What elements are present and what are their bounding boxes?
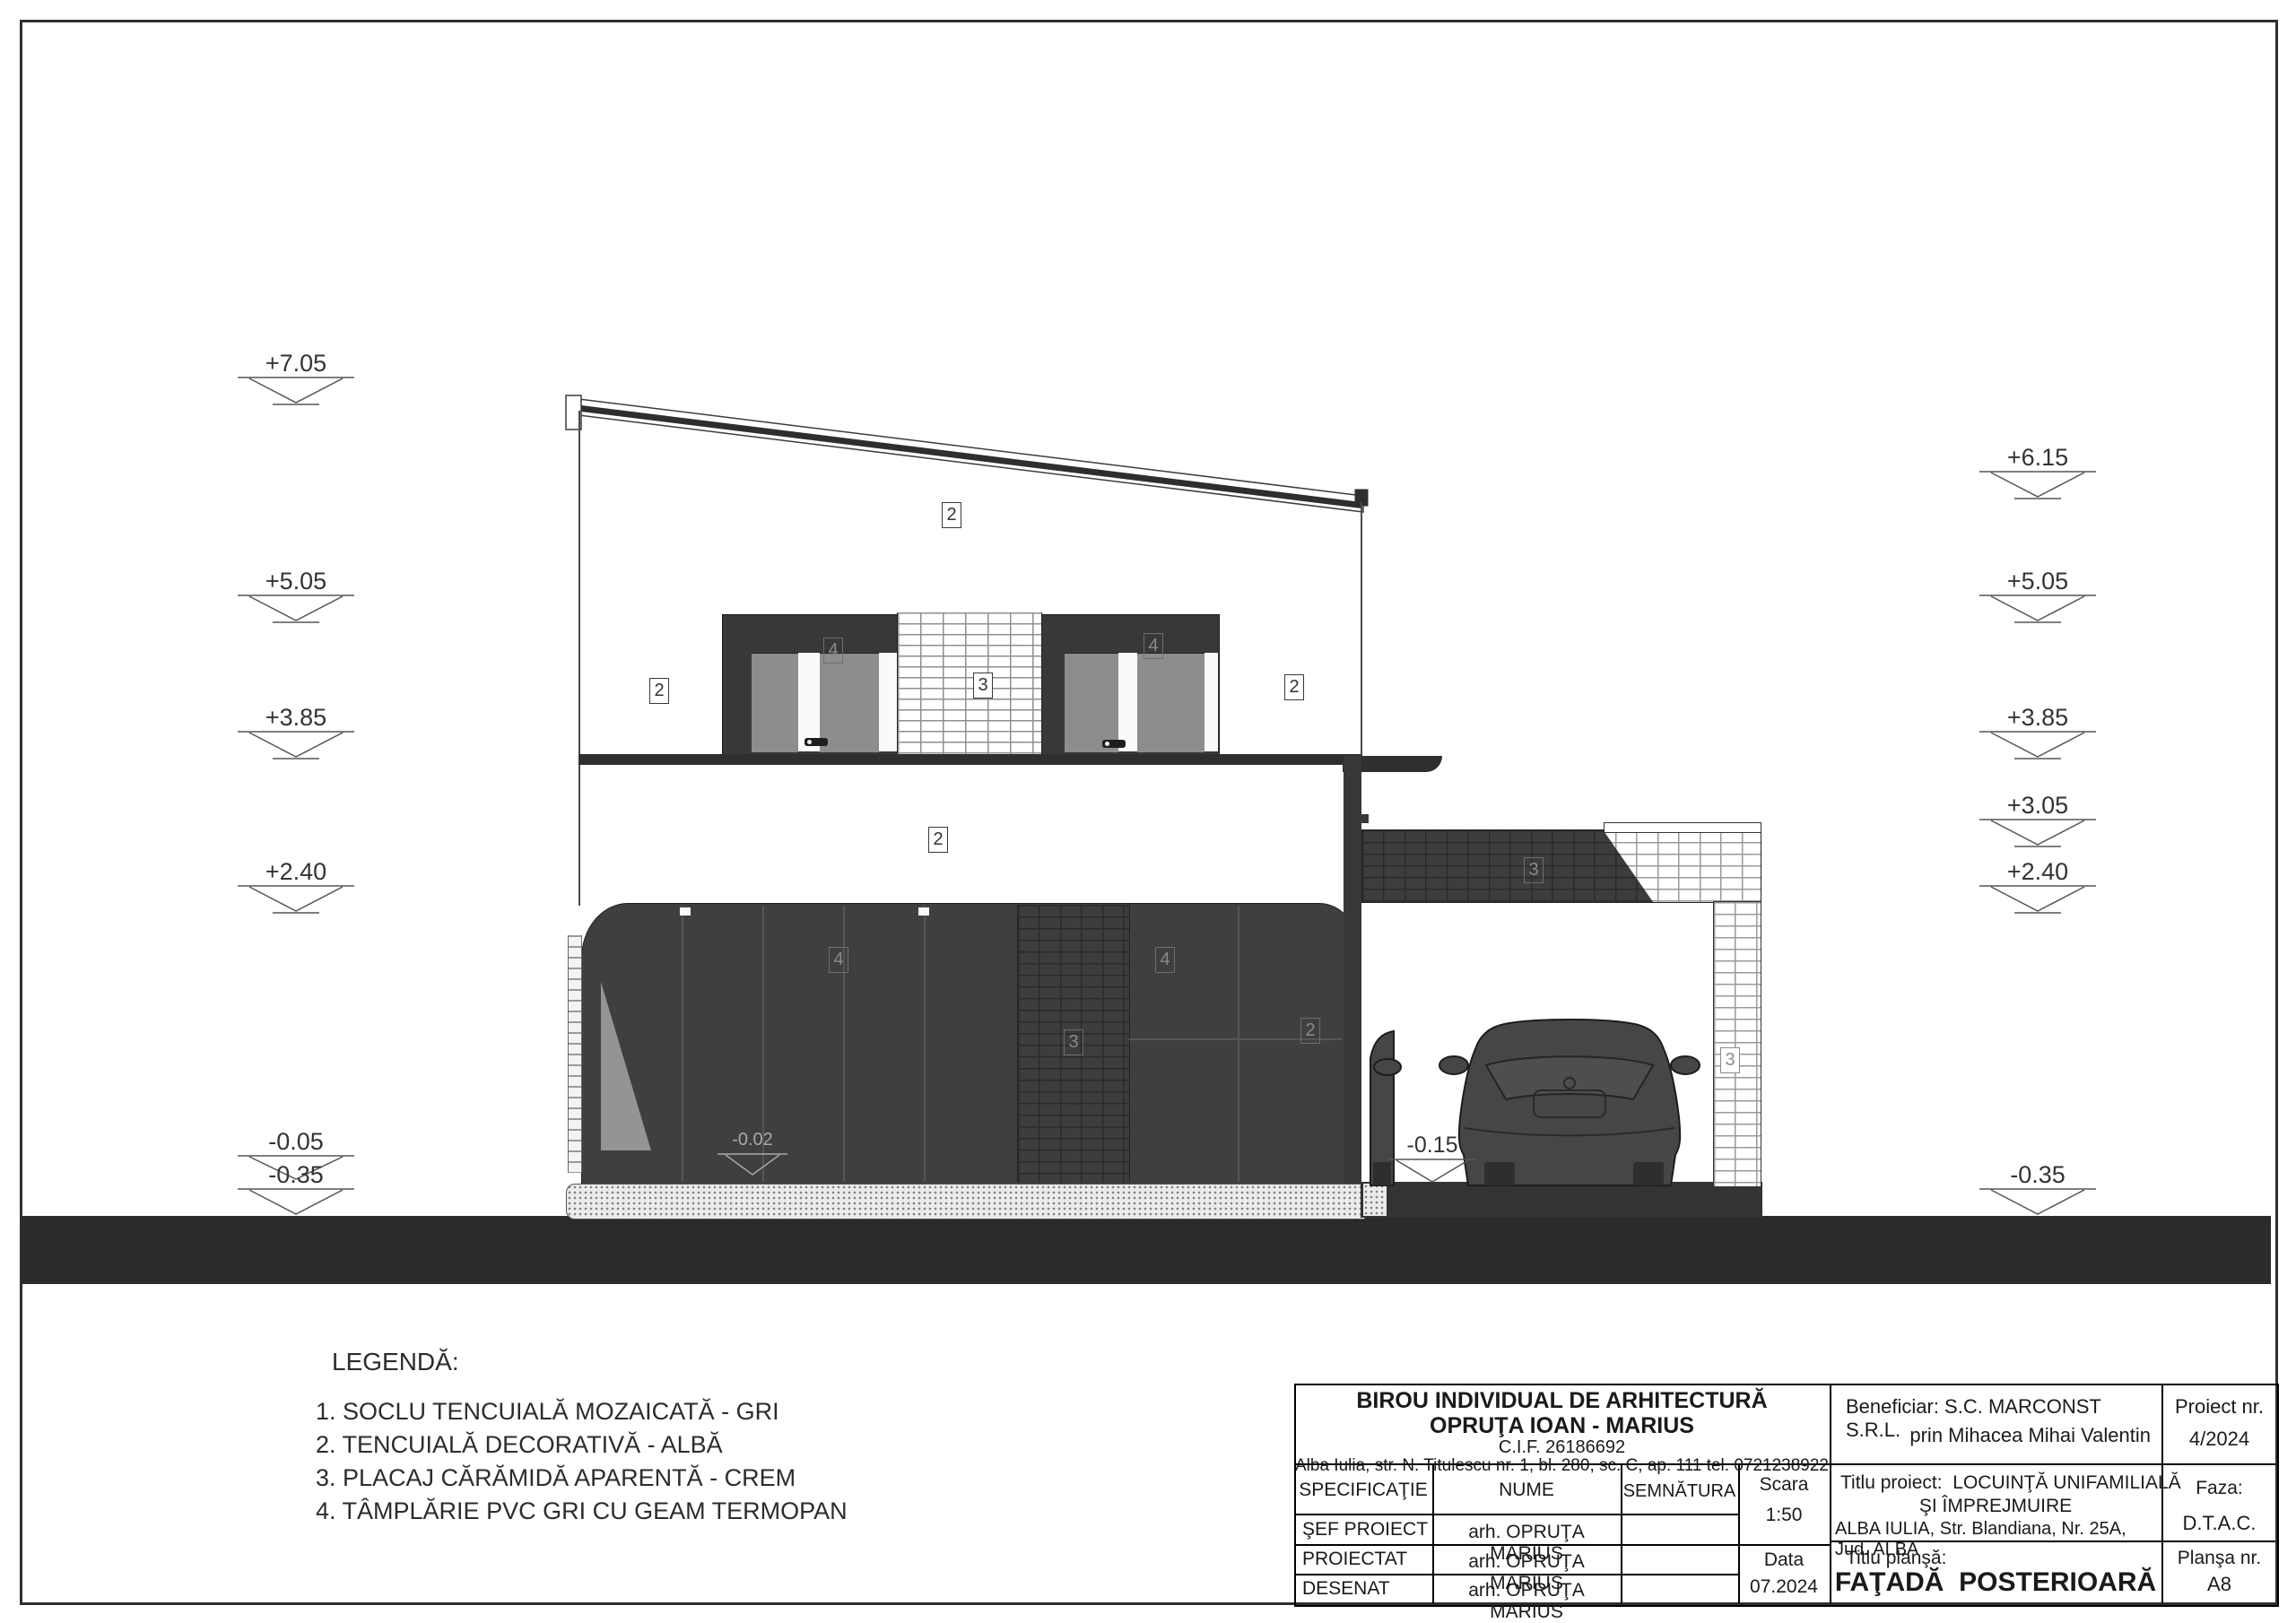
callout-ground-right: 4 — [1155, 947, 1175, 973]
proiect-nr-value: 4/2024 — [2163, 1428, 2275, 1451]
col-specificatie: SPECIFICAŢIE — [1294, 1480, 1432, 1501]
scara-label: Scara — [1738, 1474, 1830, 1496]
drawing-sheet: 2 2 2 4 3 4 2 4 3 4 2 3 3 +7.05 +5.05 +3… — [0, 0, 2296, 1623]
office-address: Alba Iulia, str. N. Titulescu nr. 1, bl.… — [1294, 1456, 1830, 1476]
callout-ground-left: 4 — [829, 947, 848, 973]
data-value: 07.2024 — [1738, 1576, 1830, 1598]
col-nume: NUME — [1432, 1480, 1621, 1501]
legend-title: LEGENDĂ: — [332, 1348, 459, 1376]
callout-window-upper-left: 4 — [823, 638, 843, 664]
elevation-label: +3.85 — [237, 704, 355, 731]
callout-wall-right: 2 — [1284, 674, 1304, 700]
row-spec: DESENAT — [1302, 1578, 1390, 1600]
elevation-marker: +3.05 — [1979, 792, 2097, 851]
callout-ground-wall: 2 — [1300, 1018, 1320, 1044]
office-name: BIROU INDIVIDUAL DE ARHITECTURĂ — [1294, 1388, 1830, 1414]
proiect-nr-label: Proiect nr. — [2163, 1395, 2275, 1419]
elevation-marker: +2.40 — [1979, 858, 2097, 917]
car-mirror — [1439, 1056, 1468, 1074]
car-wheel — [1484, 1162, 1515, 1185]
door-handle-icon — [804, 738, 828, 746]
elevation-marker-door: -0.02 — [717, 1126, 788, 1176]
callout-wall-left: 2 — [649, 678, 669, 704]
car-wheel — [1633, 1162, 1664, 1185]
door-handle-icon — [918, 907, 929, 916]
callout-ground-pier: 3 — [1064, 1029, 1083, 1055]
upper-window-pane — [752, 653, 798, 752]
titlu-proiect-line1: Titlu proiect: LOCUINŢĂ UNIFAMILIALĂ — [1840, 1472, 2156, 1494]
elevation-marker: +2.40 — [237, 858, 355, 917]
elevation-label: +5.05 — [237, 568, 355, 595]
elevation-label: -0.35 — [237, 1161, 355, 1188]
callout-roof: 2 — [942, 502, 961, 528]
door-handle-icon — [680, 907, 691, 916]
parapet-coping — [1604, 822, 1761, 833]
corner-quoin-texture — [568, 935, 582, 1173]
titlu-plansa-value: FAŢADĂ POSTERIOARĂ — [1830, 1567, 2161, 1598]
upper-window-pane — [820, 653, 879, 752]
elevation-label: +5.05 — [1979, 568, 2097, 595]
elevation-label: +3.05 — [1979, 792, 2097, 819]
titlu-plansa-label: Titlu planşă: — [1846, 1548, 1946, 1569]
elevation-label: -0.15 — [1387, 1132, 1477, 1159]
upper-window-pane — [1065, 653, 1118, 752]
elevation-label: +2.40 — [237, 858, 355, 885]
upper-window-pane — [1137, 653, 1205, 752]
legend-item: 2. TENCUIALĂ DECORATIVĂ - ALBĂ — [316, 1428, 723, 1462]
elevation-label: +2.40 — [1979, 858, 2097, 885]
glazing-mullion-line — [924, 906, 926, 1182]
wall-bracket — [1361, 814, 1369, 823]
elevation-marker: +6.15 — [1979, 444, 2097, 503]
elevation-label: -0.02 — [717, 1126, 788, 1153]
office-cif: C.I.F. 26186692 — [1294, 1437, 1830, 1458]
callout-pier-upper: 3 — [973, 673, 993, 699]
elevation-label: -0.05 — [237, 1128, 355, 1155]
soclu-band — [566, 1184, 1365, 1219]
elevation-marker: +3.85 — [1979, 704, 2097, 763]
data-label: Data — [1738, 1549, 1830, 1571]
upper-window-mullion — [1118, 653, 1137, 751]
legend-item: 4. TÂMPLĂRIE PVC GRI CU GEAM TERMOPAN — [316, 1495, 848, 1528]
roof — [561, 391, 1408, 543]
titlu-proiect-line2: ŞI ÎMPREJMUIRE — [1830, 1496, 2161, 1517]
elevation-marker-carport: -0.15 — [1387, 1132, 1477, 1184]
elevation-label: -0.35 — [1979, 1161, 2097, 1188]
car-body — [1459, 1020, 1680, 1185]
elevation-label: +6.15 — [1979, 444, 2097, 471]
upper-brick-pier — [897, 612, 1042, 754]
row-spec: ŞEF PROIECT — [1302, 1519, 1428, 1541]
elevation-marker: -0.35 — [237, 1161, 355, 1217]
upper-window-jamb — [1205, 653, 1218, 751]
right-wall-line — [1361, 502, 1362, 756]
callout-parapet: 3 — [1524, 857, 1544, 883]
door-handle-icon — [1102, 740, 1126, 748]
callout-slab: 2 — [928, 827, 948, 853]
upper-window-jamb — [879, 653, 897, 751]
col-semnatura: SEMNĂTURA — [1621, 1481, 1738, 1502]
faza-value: D.T.A.C. — [2163, 1512, 2275, 1535]
row-nume: arh. OPRUŢA MARIUS — [1432, 1580, 1621, 1623]
beneficiar-line2: prin Mihacea Mihai Valentin — [1846, 1424, 2151, 1447]
upper-window-mullion — [798, 653, 820, 751]
elevation-marker: +5.05 — [1979, 568, 2097, 627]
elevation-marker: +7.05 — [237, 350, 355, 409]
elevation-marker: +5.05 — [237, 568, 355, 627]
car-mirror — [1671, 1056, 1700, 1074]
left-wall-line — [578, 411, 580, 906]
row-spec: PROIECTAT — [1302, 1549, 1407, 1570]
legend-item: 1. SOCLU TENCUIALĂ MOZAICATĂ - GRI — [316, 1395, 779, 1428]
scara-value: 1:50 — [1738, 1505, 1830, 1526]
parapet-dark-brick — [1362, 830, 1761, 902]
glazing-mullion-line — [1238, 906, 1239, 1182]
glazing-mullion-line — [682, 906, 683, 1182]
faza-label: Faza: — [2163, 1478, 2275, 1499]
ground-floor-glazing — [581, 903, 1361, 1185]
elevation-label: +3.85 — [1979, 704, 2097, 731]
callout-pillar: 3 — [1720, 1047, 1740, 1073]
ground-strip — [22, 1216, 2271, 1284]
elevation-marker: -0.35 — [1979, 1161, 2097, 1217]
plansa-label: Planşa nr. — [2163, 1548, 2275, 1569]
elevation-label: +7.05 — [237, 350, 355, 377]
legend-item: 3. PLACAJ CĂRĂMIDĂ APARENTĂ - CREM — [316, 1462, 796, 1495]
office-owner: OPRUŢA IOAN - MARIUS — [1294, 1413, 1830, 1439]
elevation-marker: +3.85 — [237, 704, 355, 763]
plansa-value: A8 — [2163, 1573, 2275, 1596]
carport-parapet — [1361, 829, 1761, 903]
callout-window-upper-right: 4 — [1144, 633, 1163, 659]
slab-edge — [578, 754, 1361, 765]
